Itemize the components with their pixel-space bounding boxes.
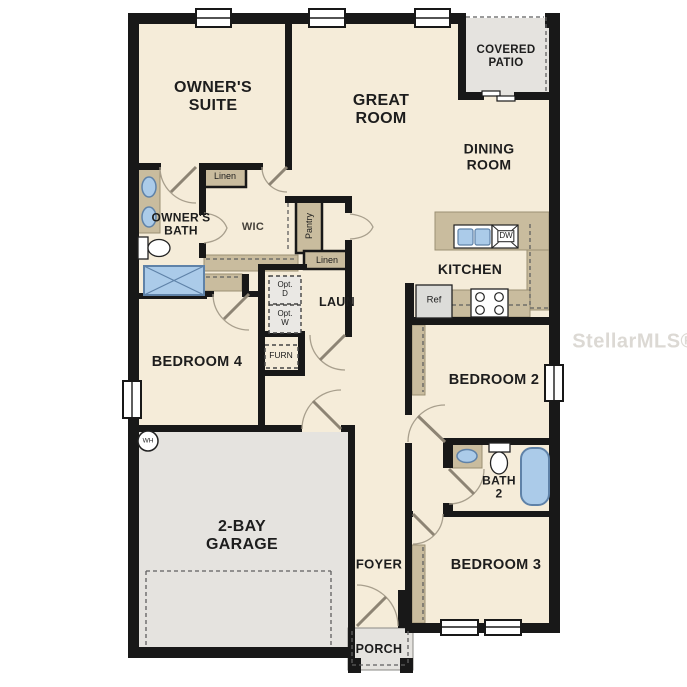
label-furnace: FURN — [269, 351, 293, 361]
toilet-tank — [138, 237, 148, 259]
room-label-bedroom3: BEDROOM 3 — [451, 557, 542, 573]
floor-plan: OWNER'S SUITE GREAT ROOM COVERED PATIO D… — [0, 0, 687, 687]
bathtub — [521, 448, 549, 505]
room-label-porch: PORCH — [356, 642, 403, 656]
label-pantry: Pantry — [304, 213, 314, 239]
bath2-toilet-bowl — [491, 452, 508, 474]
room-label-owners-bath: OWNER'S BATH — [152, 212, 211, 239]
room-label-great-room: GREAT ROOM — [353, 92, 409, 128]
room-label-owners-suite: OWNER'S SUITE — [174, 79, 252, 115]
label-opt-dryer: Opt. D — [277, 281, 292, 299]
room-label-bath2: BATH 2 — [482, 475, 516, 502]
label-linen-2: Linen — [316, 255, 338, 265]
shower — [144, 266, 204, 295]
room-label-kitchen: KITCHEN — [438, 262, 502, 278]
patio-slider-panel — [482, 91, 500, 96]
room-label-bedroom4: BEDROOM 4 — [152, 354, 243, 370]
room-label-laundry: LAUN — [319, 295, 355, 309]
room-label-wic: WIC — [242, 221, 264, 233]
bath2-sink — [457, 450, 477, 463]
kitchen-sink — [454, 225, 492, 248]
label-refrigerator: Ref — [427, 296, 442, 307]
room-label-covered-patio: COVERED PATIO — [477, 44, 536, 70]
label-dishwasher: DW — [497, 230, 514, 242]
vanity-sink — [142, 177, 156, 197]
bath2-toilet-tank — [489, 443, 510, 452]
toilet-bowl — [148, 240, 170, 257]
room-label-bedroom2: BEDROOM 2 — [449, 372, 540, 388]
stove — [471, 289, 508, 317]
room-label-garage: 2-BAY GARAGE — [206, 518, 278, 554]
label-linen-1: Linen — [214, 171, 236, 181]
room-label-foyer: FOYER — [356, 558, 402, 573]
label-opt-washer: Opt. W — [277, 310, 292, 328]
stellar-mls-watermark: StellarMLS® — [572, 331, 687, 354]
room-label-dining-room: DINING ROOM — [464, 141, 515, 172]
label-water-heater: WH — [143, 437, 154, 444]
patio-slider-panel — [497, 96, 515, 101]
